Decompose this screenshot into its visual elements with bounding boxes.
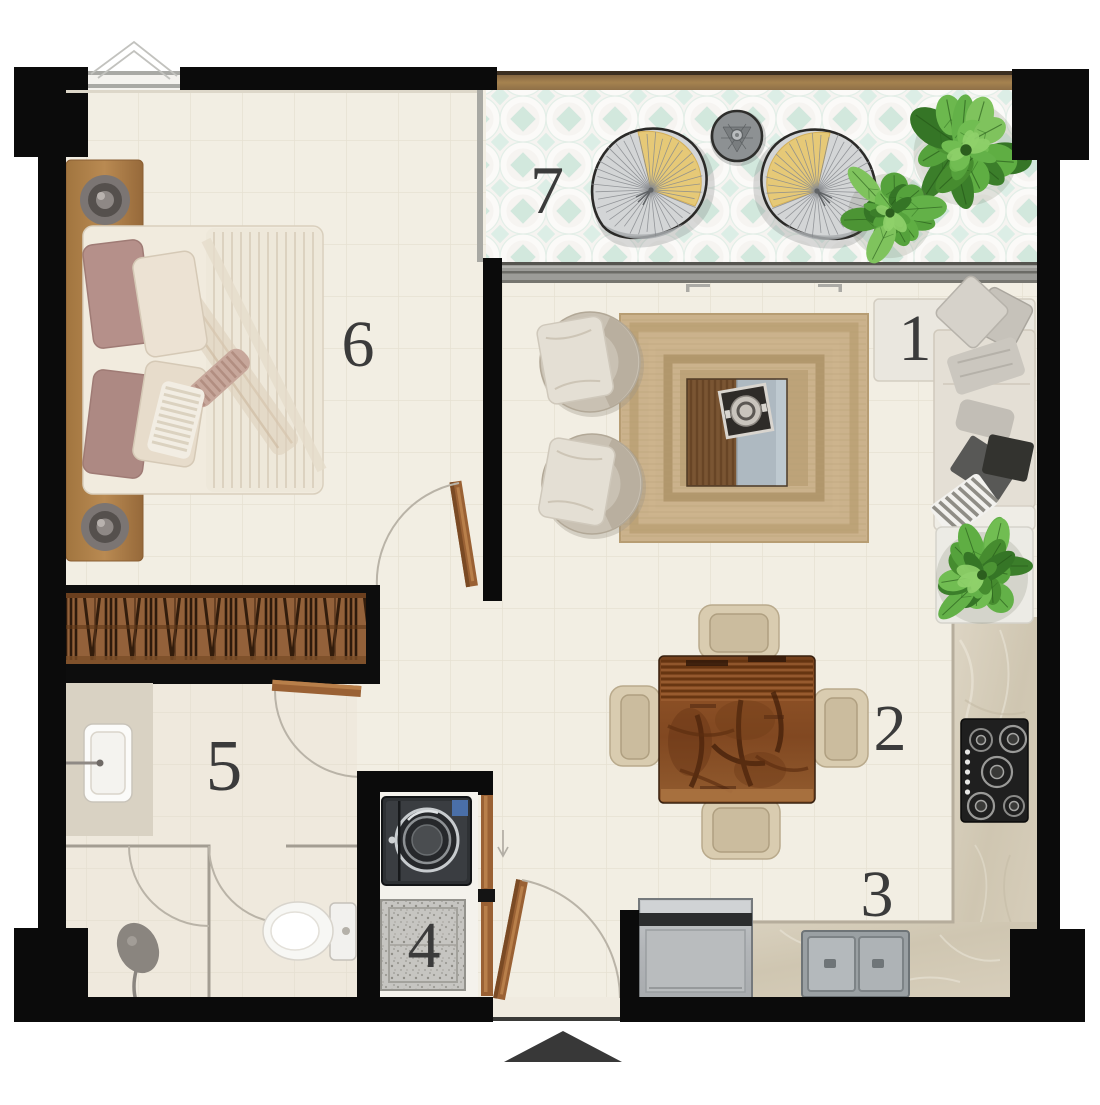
svg-text:1: 1 — [899, 302, 932, 375]
svg-text:6: 6 — [342, 308, 375, 381]
svg-text:2: 2 — [874, 692, 907, 765]
svg-text:7: 7 — [530, 152, 564, 228]
svg-text:3: 3 — [861, 858, 894, 931]
svg-text:5: 5 — [206, 725, 243, 806]
svg-text:4: 4 — [408, 909, 441, 982]
